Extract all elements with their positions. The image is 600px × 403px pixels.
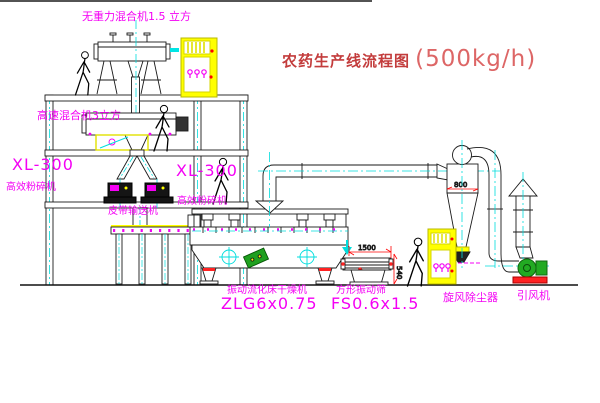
label-belt-conveyor: 皮带输送机 bbox=[108, 207, 158, 217]
control-cabinet-1 bbox=[181, 38, 217, 97]
label-top-mixer: 无重力混合机1.5 立方 bbox=[82, 11, 191, 22]
label-left-crusher-name: 高效粉碎机 bbox=[6, 183, 56, 193]
induced-draft-fan bbox=[513, 259, 547, 283]
fluid-bed-dryer bbox=[190, 209, 348, 284]
title-text: 农药生产线流程图 bbox=[282, 52, 410, 70]
label-dryer-model: ZLG6x0.75 bbox=[221, 296, 318, 312]
label-left-crusher-model: XL-300 bbox=[12, 157, 74, 173]
label-fan: 引风机 bbox=[517, 290, 550, 301]
label-screen-model: FS0.6x1.5 bbox=[331, 296, 419, 312]
control-cabinet-2 bbox=[428, 229, 456, 284]
cyclone-dim-text: 800 bbox=[454, 181, 467, 189]
worker-ground bbox=[408, 238, 424, 286]
belt-conveyor bbox=[111, 208, 200, 284]
cad-flow-diagram: 800 bbox=[0, 0, 600, 403]
pulverizer-1 bbox=[104, 183, 136, 203]
title-capacity: (500kg/h) bbox=[415, 46, 536, 72]
label-cyclone: 旋风除尘器 bbox=[443, 292, 498, 303]
label-floor2-mixer: 高速混合机3立方 bbox=[37, 110, 121, 121]
vibrating-screen: 1500 540 bbox=[341, 240, 403, 285]
pulverizer-2 bbox=[141, 183, 173, 203]
screen-length-dim: 1500 bbox=[358, 244, 376, 252]
diagram-title: 农药生产线流程图 (500kg/h) bbox=[282, 46, 536, 72]
worker-roof bbox=[75, 52, 89, 95]
screen-height-dim: 540 bbox=[395, 266, 403, 279]
outlet-duct bbox=[467, 147, 552, 272]
label-mid-crusher-name: 高效粉碎机 bbox=[177, 197, 227, 207]
label-mid-crusher-model: XL-300 bbox=[176, 163, 238, 179]
